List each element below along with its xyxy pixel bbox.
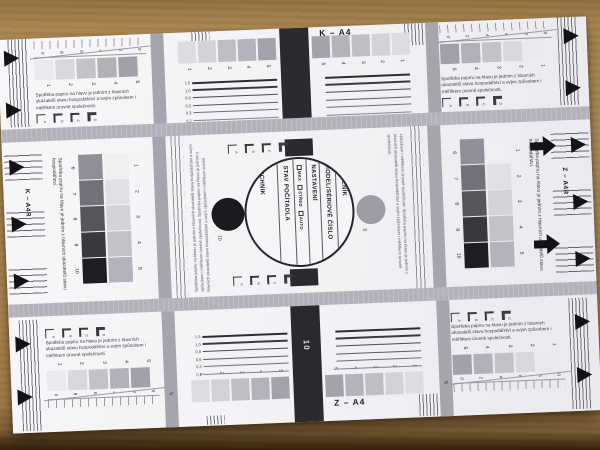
gray-patch — [110, 368, 130, 389]
test-line — [326, 103, 411, 107]
line-width-label: 0.2 — [183, 118, 192, 123]
wedge-number: 3 — [503, 345, 512, 348]
gray-patch — [104, 153, 129, 179]
bracket-letter: B — [474, 319, 478, 322]
gray-patch — [345, 374, 364, 397]
vertical-gray-wedge — [460, 137, 515, 268]
scale-number: 8 — [70, 393, 78, 396]
wedge-number: 3 — [87, 82, 96, 85]
column-bar — [150, 33, 167, 123]
wedge-numbers: 12345 — [513, 137, 526, 266]
scale-number: 4 — [482, 34, 490, 37]
gray-patch — [490, 241, 515, 267]
corner-bracket-mark: C — [485, 311, 494, 320]
wedge-number: 4 — [338, 62, 346, 65]
gray-patch — [488, 189, 513, 215]
passage-text: Spotřeba papíru na hlavu je jedním z hla… — [35, 88, 143, 112]
service-form: ZÁKAZNÍK MODEL/SÉRIOVÉ ČÍSLO NASTAVENÍ M… — [244, 157, 354, 267]
passage-text: Spotřeba papíru na hlavu je jedním z hla… — [441, 72, 549, 96]
bracket-letter: B — [59, 120, 63, 123]
gray-patch — [460, 139, 485, 165]
wedge-number: 5 — [459, 347, 468, 350]
wedge-number: 1 — [53, 363, 62, 366]
feed-arrow-icon — [530, 135, 558, 158]
side-passage-text: Spotřeba papíru na hlavu je jedním z hla… — [49, 157, 67, 295]
hairline-pattern — [410, 126, 428, 288]
option-label: MAX — [297, 171, 302, 181]
scale-number: 6 — [501, 33, 509, 36]
arrow-triangle-icon — [575, 313, 591, 330]
wedge-number: 3 — [492, 66, 501, 69]
corner-block-top-right: 024680 54321 Spotřeba papíru na hlavu je… — [439, 21, 554, 108]
bracket-letter: A — [42, 121, 46, 124]
gray-patch — [89, 369, 109, 390]
gray-patch — [237, 39, 256, 62]
gray-patch — [503, 41, 523, 62]
fine-print-column: Spotřeba papíru na hlavu je jedním z hla… — [188, 142, 214, 293]
gray-patch — [118, 56, 138, 77]
wedge-number: 9 — [72, 241, 78, 249]
wedge-number: 6 — [451, 149, 457, 157]
wedge-number: 5 — [448, 68, 457, 71]
wedge-number: 2 — [133, 187, 139, 195]
test-line — [336, 357, 421, 361]
wedge-number: 1 — [42, 84, 51, 87]
bracket-letter: A — [457, 319, 461, 322]
corner-bracket-mark: C — [79, 328, 88, 337]
wedge-number: 5 — [143, 359, 152, 362]
wedge-number: 3 — [357, 61, 365, 64]
gray-patch — [536, 351, 556, 372]
wedge-number: 2 — [526, 344, 535, 347]
scale-number: 0 — [37, 52, 45, 55]
test-line — [193, 101, 278, 105]
test-line — [325, 73, 410, 78]
column-bar: 5 — [161, 311, 179, 427]
test-line — [325, 81, 410, 86]
line-width-test: 1.51.00.80.50.30.2 — [191, 331, 289, 377]
bracket-letter: C — [268, 150, 272, 153]
gray-patch — [105, 179, 130, 205]
wedge-number: 4 — [109, 81, 118, 84]
gray-patch — [198, 40, 217, 63]
fine-print-text: Spotřeba papíru na hlavu je jedním z hla… — [188, 142, 214, 293]
line-width-label: 0.8 — [182, 95, 191, 100]
line-width-label: 1.5 — [181, 80, 190, 85]
corner-bracket-mark: D — [279, 142, 288, 151]
wedge-number: 4 — [517, 223, 523, 231]
black-bar-number: 10 — [302, 340, 311, 351]
arrow-triangle-icon — [6, 102, 22, 119]
scale-number: 2 — [476, 377, 484, 380]
gray-patch — [271, 377, 290, 400]
scale-number: 8 — [534, 374, 542, 377]
wedge-number: 7 — [452, 174, 458, 182]
corner-bracket-mark: B — [468, 312, 477, 321]
corner-bracket-mark: B — [53, 114, 62, 123]
arrow-triangle-icon — [577, 366, 593, 383]
test-line — [204, 363, 289, 367]
bracket-letter: B — [251, 151, 255, 154]
line-width-label: 1.0 — [181, 88, 190, 93]
corner-bracket-mark: D — [87, 112, 96, 121]
wedge-number: 2 — [377, 60, 385, 63]
gray-patch — [55, 59, 75, 80]
corner-bracket-mark: D — [493, 96, 502, 105]
registration-marks: ABCD — [36, 110, 148, 123]
gray-patch — [257, 38, 276, 61]
gray-patch — [464, 242, 489, 268]
scale-number: 0 — [51, 394, 59, 397]
scale-number: 2 — [129, 391, 137, 394]
test-line — [336, 350, 421, 354]
gray-patch — [524, 40, 544, 61]
gray-patch — [494, 353, 514, 374]
resolution-lines — [207, 415, 225, 425]
option-label: AUTO — [299, 217, 305, 230]
settings-option: STŘED — [298, 185, 304, 207]
settings-option: AUTO — [299, 211, 305, 230]
line-width-label: 0.3 — [193, 364, 202, 369]
corner-bracket-mark: A — [233, 276, 242, 285]
bracket-letter: B — [256, 282, 260, 285]
option-label: STŘED — [298, 191, 304, 207]
checkbox-icon — [299, 211, 304, 216]
bracket-letter: C — [76, 120, 80, 123]
gray-patch — [218, 39, 237, 62]
scale-number: 4 — [495, 376, 503, 379]
arrow-triangle-icon — [15, 336, 31, 353]
column-bar-number: 5 — [168, 392, 174, 395]
bracket-letter: C — [482, 103, 486, 106]
scale-number: 0 — [457, 378, 465, 381]
gray-patch — [391, 32, 410, 55]
wedge-number: 5 — [263, 65, 271, 68]
wedge-number: 1 — [548, 343, 557, 346]
corner-bracket-mark: D — [284, 274, 293, 283]
line-width-test: 1.51.00.80.50.30.2 — [314, 71, 412, 117]
corner-bracket-mark: B — [62, 328, 71, 337]
bracket-letter: C — [273, 282, 277, 285]
wedge-number: 3 — [516, 198, 522, 206]
wedge-number: 4 — [135, 239, 141, 247]
test-line — [193, 94, 278, 98]
test-line — [203, 340, 288, 345]
line-width-test: 1.51.00.80.50.30.2 — [181, 77, 279, 123]
arrow-triangle-icon — [4, 50, 20, 67]
wedge-number: 2 — [75, 362, 84, 365]
wedge-number: 6 — [69, 164, 75, 172]
wedge-number: 2 — [515, 172, 521, 180]
bracket-letter: D — [499, 103, 503, 106]
checkbox-icon — [297, 165, 302, 170]
line-width-label: 0.2 — [193, 372, 202, 377]
black-dot-label: 10 — [216, 235, 222, 241]
registration-marks: ABCD — [442, 94, 554, 107]
gray-patch — [473, 354, 493, 375]
label-k-a4: K – A4 — [319, 27, 352, 38]
arrow-triangle-icon — [573, 193, 589, 210]
corner-bracket-mark: A — [228, 144, 237, 153]
gray-patch — [331, 35, 350, 58]
wedge-number: 4 — [120, 360, 129, 363]
black-bar-top — [279, 27, 312, 118]
wedge-number: 3 — [98, 361, 107, 364]
test-line — [192, 78, 277, 83]
scale-number: 0 — [134, 48, 142, 51]
scale-number: 6 — [515, 375, 523, 378]
corner-block-bottom-right: 024680 54321 Spotřeba papíru na hlavu je… — [451, 306, 566, 393]
test-line — [336, 342, 421, 346]
wedge-number: 10 — [455, 252, 461, 260]
wedge-number: 3 — [224, 66, 232, 69]
gray-patch — [131, 367, 151, 388]
bracket-letter: D — [93, 119, 97, 122]
gray-patch — [371, 33, 390, 56]
corner-bracket-mark: A — [45, 329, 54, 338]
scale-number: 4 — [109, 391, 117, 394]
side-passage: Spotřeba papíru na hlavu je jedním z hla… — [526, 138, 550, 277]
bracket-letter: C — [85, 334, 89, 337]
scale-number: 2 — [115, 49, 123, 52]
corner-bracket-mark: A — [36, 114, 45, 123]
gray-patch — [489, 215, 514, 241]
vertical-gray-wedge — [78, 153, 133, 284]
black-square — [285, 138, 314, 156]
gray-patch — [107, 231, 132, 257]
wedge-number: 2 — [515, 65, 524, 68]
wedge-number: 4 — [243, 65, 251, 68]
gray-patch — [47, 371, 67, 392]
wedge-number: 2 — [204, 67, 212, 70]
gray-step-wedge — [191, 377, 290, 403]
gray-patch — [487, 163, 512, 189]
corner-bracket-mark: B — [459, 97, 468, 106]
checkbox-icon — [298, 185, 303, 190]
column-bar-number: 5 — [442, 381, 448, 384]
registration-marks: ABCD — [233, 274, 293, 285]
gray-patch — [482, 42, 502, 63]
corner-bracket-mark: C — [262, 143, 271, 152]
black-bar-bottom: 10 — [290, 305, 324, 422]
arrow-triangle-icon — [14, 273, 30, 290]
gray-patch — [108, 257, 133, 283]
scale-number: 0 — [443, 36, 451, 39]
gray-patch — [79, 180, 104, 206]
test-line — [326, 96, 411, 100]
feed-arrow-icon — [534, 233, 562, 256]
bracket-letter: A — [448, 105, 452, 108]
wedge-number: 5 — [131, 80, 140, 83]
wedge-number: 1 — [132, 161, 138, 169]
light-wedge-column — [104, 153, 133, 283]
scale-number: 2 — [462, 35, 470, 38]
test-sheet: 5 5 10 ZÁKAZNÍK MODEL/SÉRIOVÉ ČÍSLO NAST… — [0, 16, 600, 433]
arrow-triangle-icon — [17, 389, 33, 406]
test-line — [326, 88, 411, 92]
bracket-letter: A — [239, 283, 243, 286]
corner-block-bottom-left: 086420 12345 Spotřeba papíru na hlavu je… — [45, 322, 160, 409]
gray-patch — [486, 137, 511, 163]
gray-patch — [251, 377, 270, 400]
arrow-triangle-icon — [9, 159, 25, 176]
resolution-lines — [419, 394, 440, 417]
arrow-triangle-icon — [575, 250, 591, 267]
gray-patch — [81, 232, 106, 258]
wedge-number: 5 — [318, 62, 326, 65]
scale-number: 4 — [96, 49, 104, 52]
gray-patch — [68, 370, 88, 391]
corner-bracket-mark: B — [250, 276, 259, 285]
gray-patch — [178, 41, 197, 64]
wedge-number: 8 — [453, 200, 459, 208]
corner-bracket-mark: C — [267, 275, 276, 284]
registration-marks: ABCD — [228, 142, 288, 153]
light-wedge-column — [486, 137, 515, 267]
gray-dot-label: 5 — [361, 228, 367, 231]
corner-bracket-mark: D — [502, 311, 511, 320]
arrow-triangle-icon — [571, 136, 587, 153]
fine-print-column: Spotřeba papíru na hlavu je jedním z hla… — [385, 134, 411, 285]
line-width-test: 1.51.00.80.50.30.2 — [324, 325, 422, 371]
test-line — [335, 327, 420, 332]
wedge-number: 8 — [71, 215, 77, 223]
line-width-label: 0.5 — [192, 357, 201, 362]
wedge-number: 1 — [184, 68, 192, 71]
line-width-label: 1.0 — [192, 342, 201, 347]
test-line — [203, 355, 288, 359]
black-density-dot — [211, 197, 245, 231]
corner-bracket-mark: C — [70, 113, 79, 122]
bracket-letter: D — [290, 281, 294, 284]
gray-patch — [461, 43, 481, 64]
wedge-numbers: 12345 — [131, 152, 144, 281]
test-line — [336, 334, 421, 339]
gray-patch — [452, 354, 472, 375]
arrow-triangle-icon — [11, 216, 27, 233]
dark-wedge-column — [78, 154, 107, 284]
wedge-number: 4 — [470, 67, 479, 70]
gray-patch — [191, 380, 210, 403]
gray-patch — [80, 206, 105, 232]
gray-patch — [462, 190, 487, 216]
bracket-letter: A — [234, 151, 238, 154]
gray-step-wedge — [178, 38, 277, 64]
gray-patch — [231, 378, 250, 401]
wedge-number: 10 — [74, 267, 80, 275]
scale-number: 8 — [57, 51, 65, 54]
gray-density-dot — [356, 195, 386, 225]
wedge-number: 5 — [136, 264, 142, 272]
wedge-number: 5 — [518, 249, 524, 257]
corner-bracket-mark: A — [451, 313, 460, 322]
bracket-letter: B — [68, 335, 72, 338]
gray-patch — [78, 154, 103, 180]
hairline-pattern — [170, 136, 188, 298]
side-passage-text: Spotřeba papíru na hlavu je jedním z hla… — [526, 138, 544, 276]
settings-option: MAX — [297, 165, 303, 181]
gray-patch — [97, 57, 117, 78]
gray-patch — [461, 165, 486, 191]
bracket-letter: B — [465, 104, 469, 107]
gray-patch — [440, 43, 460, 64]
technician-field: TECHNIK — [244, 160, 280, 267]
gray-patch — [405, 371, 424, 394]
gray-patch — [311, 36, 330, 59]
arrow-triangle-icon — [563, 28, 579, 45]
corner-block-top-left: 086420 12345 Spotřeba papíru na hlavu je… — [33, 37, 148, 124]
fine-print-text: Spotřeba papíru na hlavu je jedním z hla… — [385, 134, 411, 285]
gray-patch — [211, 379, 230, 402]
scale-number: 6 — [90, 392, 98, 395]
line-width-label: 0.5 — [182, 103, 191, 108]
column-bar — [152, 136, 171, 298]
gray-step-wedge — [325, 371, 424, 397]
gray-patch — [351, 34, 370, 57]
gray-patch — [365, 373, 384, 396]
bracket-letter: D — [102, 334, 106, 337]
bracket-letter: A — [51, 336, 55, 339]
gray-patch — [76, 58, 96, 79]
service-info-circle: ZÁKAZNÍK MODEL/SÉRIOVÉ ČÍSLO NASTAVENÍ M… — [242, 155, 356, 269]
line-width-label: 1.5 — [191, 334, 200, 339]
test-line — [203, 348, 288, 352]
scale-number: 6 — [76, 50, 84, 53]
scale-number: 0 — [554, 374, 562, 377]
gray-patch — [515, 352, 535, 373]
wedge-numbers: 12345 — [179, 62, 277, 74]
line-width-label: 0.8 — [192, 349, 201, 354]
test-line — [192, 86, 277, 91]
corner-bracket-mark: A — [442, 98, 451, 107]
column-bar — [427, 125, 446, 287]
gray-patch — [82, 258, 107, 284]
test-line — [193, 109, 278, 113]
black-square — [290, 268, 319, 286]
corner-bracket-mark: D — [96, 327, 105, 336]
wedge-number: 9 — [454, 226, 460, 234]
wedge-number: 4 — [481, 346, 490, 349]
corner-bracket-mark: B — [245, 144, 254, 153]
bracket-letter: D — [285, 149, 289, 152]
arrow-triangle-icon — [565, 80, 581, 97]
test-line — [202, 332, 287, 337]
gray-patch — [325, 374, 344, 397]
bracket-letter: D — [508, 317, 512, 320]
wedge-number: 7 — [70, 190, 76, 198]
dark-wedge-column — [460, 139, 489, 269]
scale-number: 8 — [521, 32, 529, 35]
gray-patch — [106, 205, 131, 231]
scale-number: 0 — [540, 32, 548, 35]
wedge-number: 1 — [397, 59, 405, 62]
wedge-numbers: 54321 — [312, 56, 410, 68]
wedge-number: 1 — [537, 64, 546, 67]
bracket-letter: C — [491, 318, 495, 321]
corner-bracket-mark: C — [476, 97, 485, 106]
gray-patch — [463, 216, 488, 242]
photo-scene: 5 5 10 ZÁKAZNÍK MODEL/SÉRIOVÉ ČÍSLO NAST… — [0, 0, 600, 450]
scale-number: 0 — [148, 390, 156, 393]
wedge-number: 2 — [64, 83, 73, 86]
label-z-a4: Z – A4 — [334, 397, 366, 408]
line-width-label: 0.3 — [182, 110, 191, 115]
wedge-number: 3 — [134, 213, 140, 221]
gray-patch — [385, 372, 404, 395]
wedge-number: 1 — [514, 146, 520, 154]
gray-patch — [34, 60, 54, 81]
